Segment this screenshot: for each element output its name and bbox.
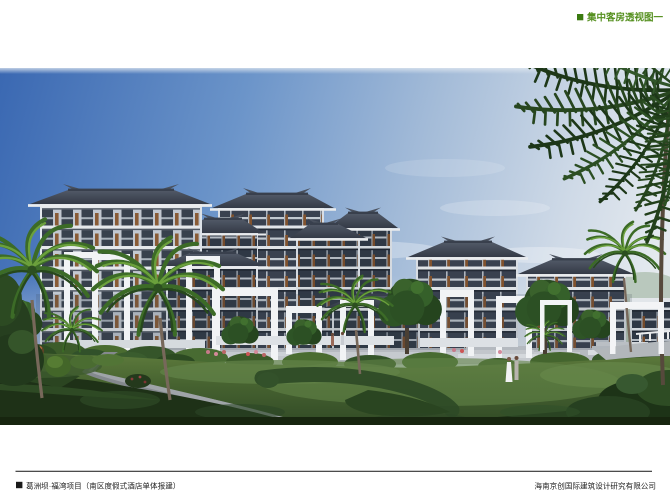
svg-text:集中客房透视图一: 集中客房透视图一 xyxy=(586,12,664,24)
svg-text:葛洲坝·福湾项目（南区度假式酒店单体报建）: 葛洲坝·福湾项目（南区度假式酒店单体报建） xyxy=(26,480,180,490)
svg-text:海南京创国际建筑设计研究有限公司: 海南京创国际建筑设计研究有限公司 xyxy=(535,480,657,490)
